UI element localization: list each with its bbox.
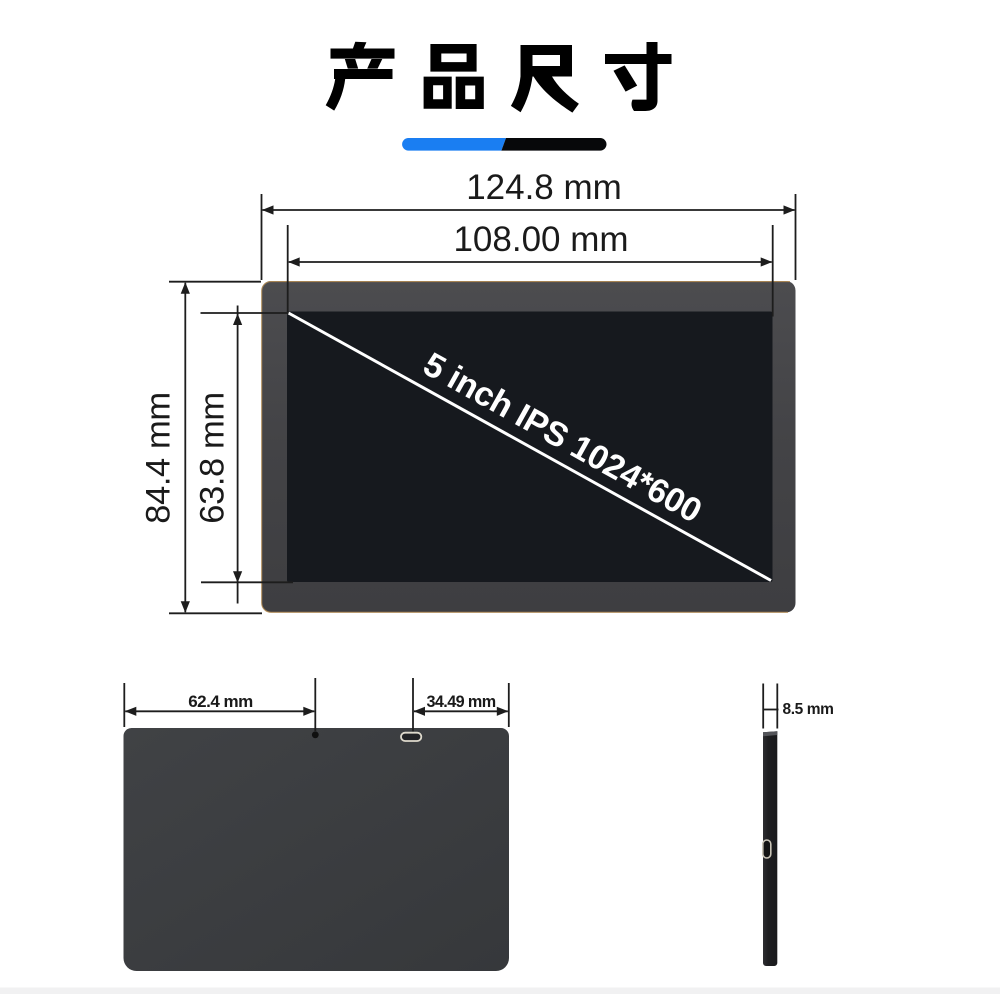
svg-text:62.4 mm: 62.4 mm [188, 692, 253, 711]
svg-text:34.49 mm: 34.49 mm [427, 693, 496, 711]
svg-text:124.8 mm: 124.8 mm [466, 168, 622, 207]
svg-text:63.8 mm: 63.8 mm [194, 392, 232, 523]
svg-text:108.00 mm: 108.00 mm [453, 220, 628, 259]
svg-text:84.4 mm: 84.4 mm [140, 392, 178, 523]
svg-text:8.5 mm: 8.5 mm [783, 701, 834, 718]
